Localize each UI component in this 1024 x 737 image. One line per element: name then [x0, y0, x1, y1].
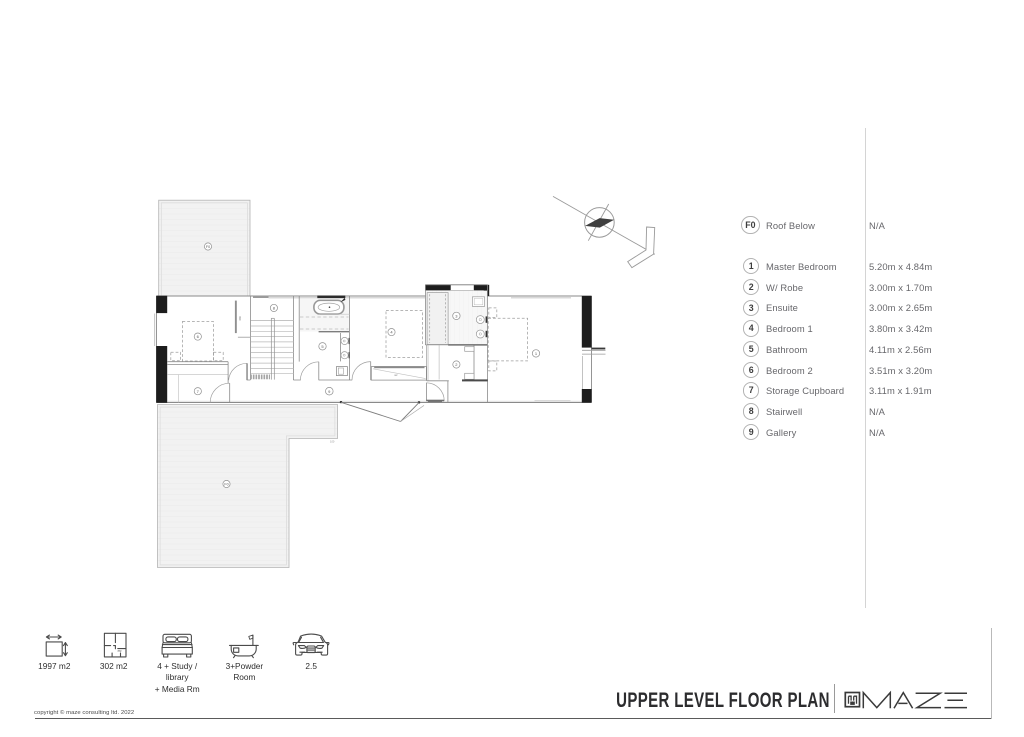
svg-text:wr: wr [394, 373, 397, 377]
svg-text:m²: m² [118, 649, 123, 653]
svg-text:100: 100 [330, 440, 335, 444]
svg-text:F0: F0 [206, 245, 210, 249]
svg-text:wc: wc [238, 316, 242, 320]
svg-text:F0: F0 [224, 483, 228, 487]
